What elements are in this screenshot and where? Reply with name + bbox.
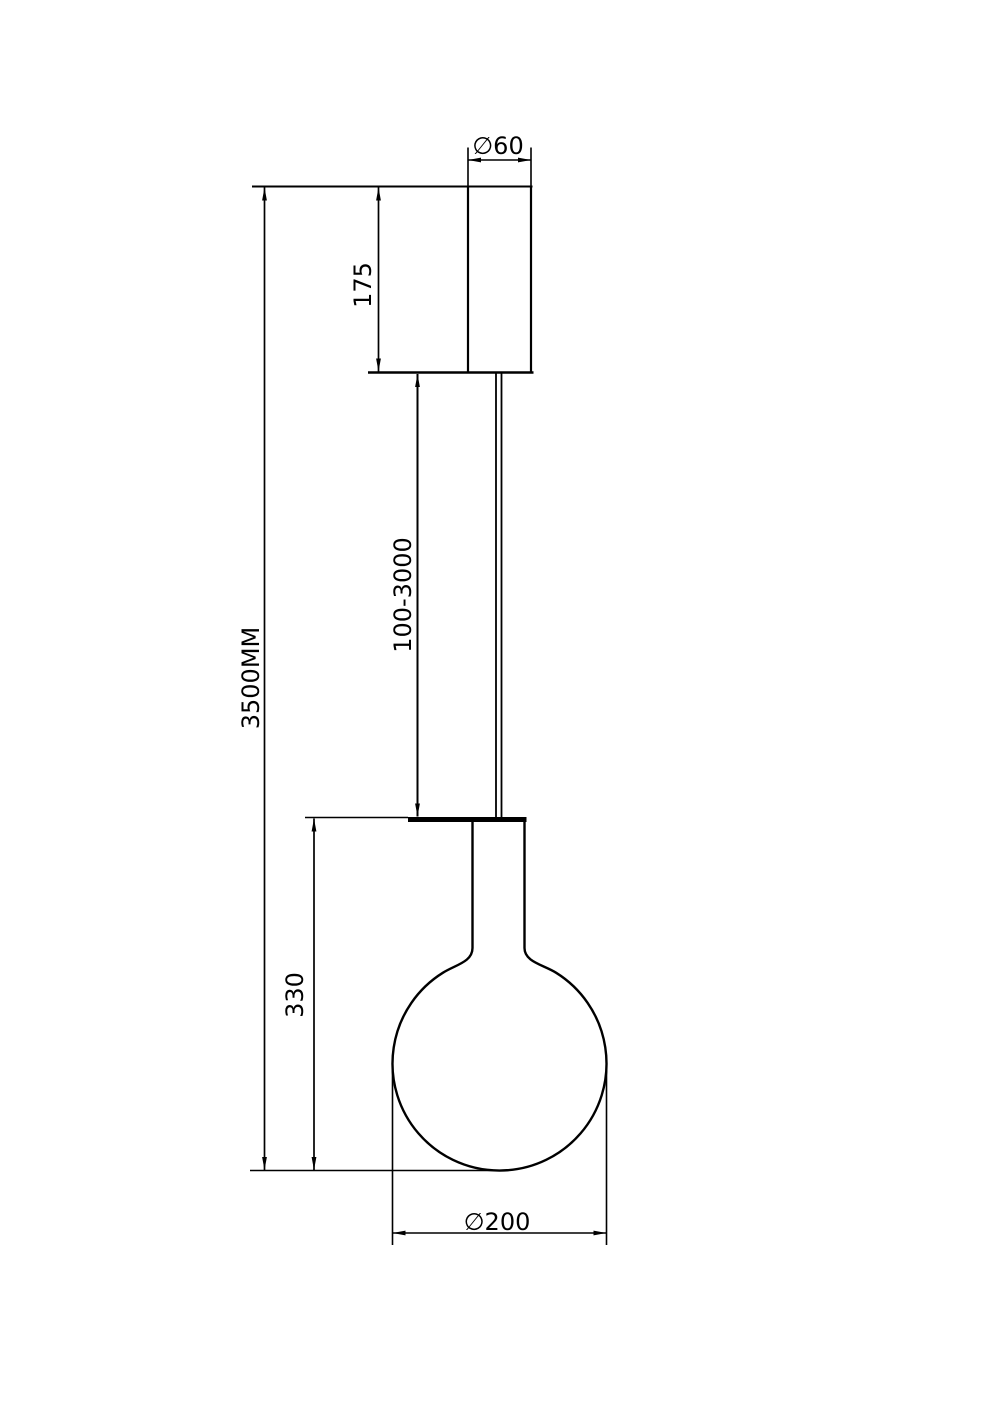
bulb-outline bbox=[393, 822, 607, 1171]
pendant-lamp-dimension-drawing: 3500MM ∅60 175 100-3000 330 ∅200 bbox=[0, 0, 992, 1403]
label-globe-diameter: ∅200 bbox=[464, 1208, 531, 1236]
technical-drawing-page: 3500MM ∅60 175 100-3000 330 ∅200 bbox=[0, 0, 992, 1403]
label-suspension-length: 100-3000 bbox=[389, 537, 417, 653]
label-overall-height: 3500MM bbox=[237, 627, 265, 730]
label-canopy-diameter: ∅60 bbox=[472, 132, 523, 160]
suspension-cable-lines bbox=[496, 374, 502, 818]
canopy-outline bbox=[468, 187, 531, 373]
label-bulb-height: 330 bbox=[281, 972, 309, 1018]
label-canopy-height: 175 bbox=[349, 262, 377, 308]
